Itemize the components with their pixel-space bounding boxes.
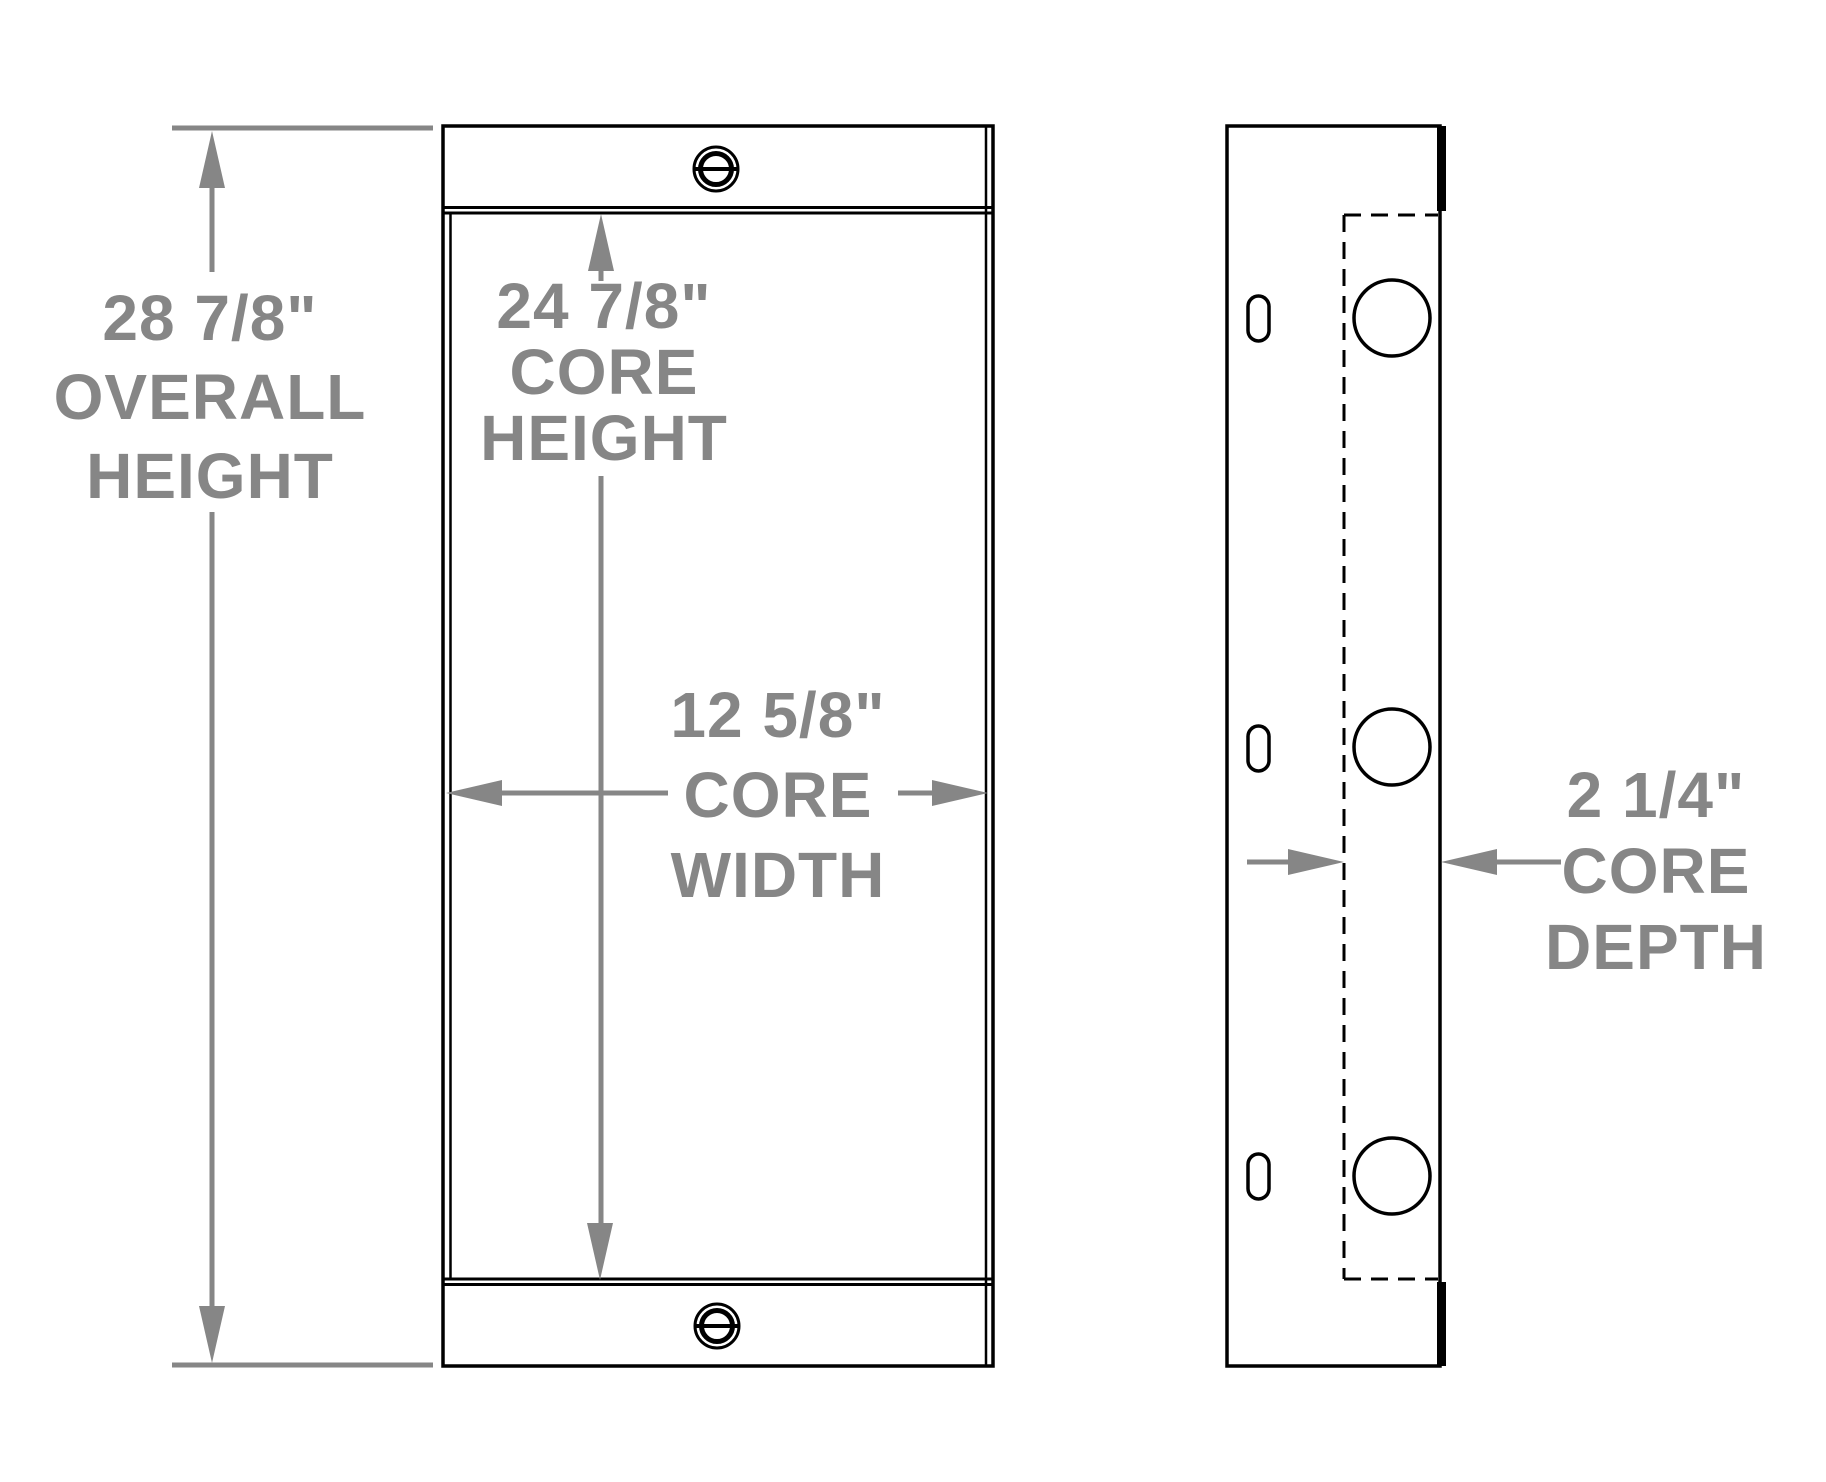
top-filler-plug-icon [694, 147, 738, 191]
round-port-icon [1354, 280, 1430, 356]
core-height-value: 24 7/8" [496, 270, 711, 342]
drawing-canvas: 28 7/8" OVERALL HEIGHT 24 7/8" CORE HEIG… [0, 0, 1826, 1482]
core-height-label: CORE [510, 336, 699, 408]
technical-drawing: 28 7/8" OVERALL HEIGHT 24 7/8" CORE HEIG… [0, 0, 1826, 1482]
overall-height-label: HEIGHT [86, 440, 334, 512]
mounting-slot-icon [1248, 726, 1269, 771]
arrow-down-icon [199, 1306, 225, 1363]
overall-height-dimension: 28 7/8" OVERALL HEIGHT [54, 128, 433, 1365]
overall-height-label: OVERALL [54, 361, 367, 433]
core-height-label: HEIGHT [480, 402, 728, 474]
round-port-icon [1354, 1138, 1430, 1214]
core-depth-value: 2 1/4" [1567, 759, 1746, 831]
bottom-drain-plug-icon [695, 1304, 739, 1348]
arrow-left-icon [1441, 849, 1497, 875]
core-width-label: WIDTH [671, 839, 886, 911]
arrow-up-icon [199, 131, 225, 188]
side-view [1227, 126, 1446, 1366]
overall-height-value: 28 7/8" [102, 282, 317, 354]
round-port-icon [1354, 709, 1430, 785]
mounting-slot-icon [1248, 296, 1269, 341]
side-top-tank-edge [1437, 126, 1446, 211]
side-bottom-tank-edge [1437, 1282, 1446, 1366]
mounting-slot-icon [1248, 1154, 1269, 1199]
core-depth-label: DEPTH [1545, 911, 1767, 983]
core-depth-label: CORE [1562, 835, 1751, 907]
core-width-value: 12 5/8" [670, 679, 885, 751]
core-width-label: CORE [684, 759, 873, 831]
